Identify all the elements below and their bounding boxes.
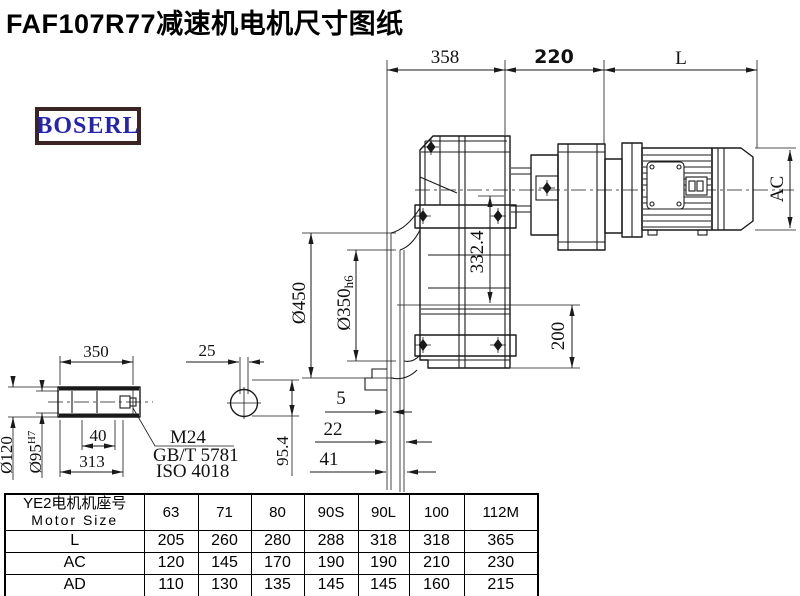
label-std-iso: ISO 4018: [156, 461, 229, 482]
cell: 260: [198, 530, 251, 552]
table-row-L: L 205 260 280 288 318 318 365: [5, 530, 538, 552]
dim-AC: AC: [767, 176, 788, 202]
cell: 135: [251, 574, 304, 596]
cell: 288: [304, 530, 358, 552]
cell: 230: [464, 552, 538, 574]
table-header-en: Motor Size: [6, 512, 144, 529]
col-63: 63: [144, 494, 198, 530]
dim-hub-od: Ø120: [0, 436, 16, 474]
cell: 170: [251, 552, 304, 574]
dim-41: 41: [320, 449, 339, 470]
cell: 365: [464, 530, 538, 552]
cell: 190: [358, 552, 409, 574]
drawing-page: FAF107R77减速机电机尺寸图纸 BOSERL: [0, 0, 800, 596]
cell: 280: [251, 530, 304, 552]
cell: 120: [144, 552, 198, 574]
dim-200: 200: [548, 322, 569, 351]
row-label-L: L: [5, 530, 144, 552]
table-row-AC: AC 120 145 170 190 190 210 230: [5, 552, 538, 574]
input-adapter: [511, 144, 622, 250]
extension-lines: [8, 60, 796, 492]
table-header-cn: YE2电机机座号: [6, 495, 144, 512]
motor-size-table: YE2电机机座号 Motor Size 63 71 80 90S 90L 100…: [4, 493, 539, 596]
dimension-lines: [13, 70, 790, 472]
dim-313: 313: [79, 452, 105, 471]
row-label-AD: AD: [5, 574, 144, 596]
dim-flange-od: Ø450: [289, 282, 310, 324]
cell: 318: [409, 530, 464, 552]
dim-L: L: [675, 48, 687, 69]
cell: 210: [409, 552, 464, 574]
table-header-label: YE2电机机座号 Motor Size: [5, 494, 144, 530]
cell: 190: [304, 552, 358, 574]
cell: 215: [464, 574, 538, 596]
dim-358: 358: [431, 47, 460, 68]
cell: 110: [144, 574, 198, 596]
col-90s: 90S: [304, 494, 358, 530]
dim-350: 350: [83, 342, 109, 361]
col-71: 71: [198, 494, 251, 530]
table-row-AD: AD 110 130 135 145 145 160 215: [5, 574, 538, 596]
dim-22: 22: [324, 419, 343, 440]
cell: 205: [144, 530, 198, 552]
dim-332-4: 332.4: [467, 230, 488, 273]
dim-95-4: 95.4: [273, 436, 292, 466]
cell: 160: [409, 574, 464, 596]
dim-40: 40: [90, 426, 107, 445]
dim-25: 25: [199, 341, 216, 360]
row-label-AC: AC: [5, 552, 144, 574]
dim-spigot: Ø350h6: [334, 275, 356, 331]
cell: 145: [198, 552, 251, 574]
cell: 145: [304, 574, 358, 596]
dim-5: 5: [336, 388, 346, 409]
col-80: 80: [251, 494, 304, 530]
cell: 318: [358, 530, 409, 552]
col-100: 100: [409, 494, 464, 530]
cell: 130: [198, 574, 251, 596]
gearbox-housing: [365, 136, 516, 390]
col-112m: 112M: [464, 494, 538, 530]
dim-220: 220: [534, 46, 574, 68]
table-header-row: YE2电机机座号 Motor Size 63 71 80 90S 90L 100…: [5, 494, 538, 530]
col-90l: 90L: [358, 494, 409, 530]
cell: 145: [358, 574, 409, 596]
